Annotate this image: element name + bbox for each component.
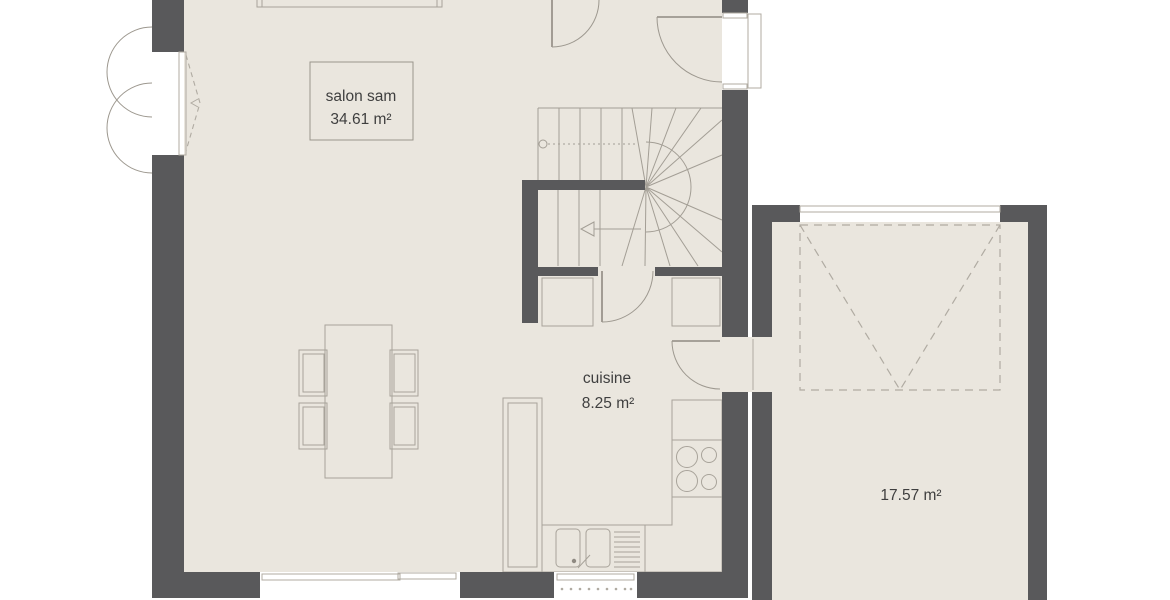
wall-garage-left-upper bbox=[752, 222, 772, 337]
entry-opening bbox=[722, 13, 761, 90]
wall-garage-top-right bbox=[1000, 205, 1047, 222]
wall-left-top bbox=[152, 0, 184, 52]
living-room-name: salon sam bbox=[326, 88, 397, 105]
wall-garage-right bbox=[1028, 222, 1047, 600]
wall-garage-left-lower bbox=[752, 392, 772, 600]
floor-plan-drawing: salon sam 34.61 m² cuisine 8.25 m² 17.57… bbox=[0, 0, 1170, 600]
floors bbox=[184, 0, 1028, 600]
wall-stair-landing bbox=[533, 180, 645, 190]
kitchen-area: 8.25 m² bbox=[582, 395, 635, 412]
wall-bottom-middle bbox=[460, 572, 554, 598]
terrace-door bbox=[260, 572, 460, 598]
wall-vestibule-right bbox=[655, 267, 722, 276]
wall-stair-left bbox=[522, 180, 538, 323]
garage-area: 17.57 m² bbox=[880, 487, 941, 504]
wall-left-main bbox=[152, 155, 184, 572]
floor-plan-page: salon sam 34.61 m² cuisine 8.25 m² 17.57… bbox=[0, 0, 1170, 600]
garage-door-opening bbox=[800, 205, 1000, 222]
label-garage: 17.57 m² bbox=[880, 487, 941, 504]
wall-bottom-right bbox=[637, 572, 748, 598]
passage-floor bbox=[722, 337, 772, 392]
garage-floor bbox=[772, 222, 1028, 600]
kitchen-window bbox=[554, 572, 637, 598]
faucet bbox=[572, 559, 576, 563]
wall-right-upper bbox=[722, 90, 748, 337]
wall-vestibule-left bbox=[538, 267, 598, 276]
wall-bottom-left bbox=[152, 572, 260, 598]
kitchen-name: cuisine bbox=[583, 370, 631, 387]
wall-garage-top-left bbox=[752, 205, 800, 222]
house-floor bbox=[184, 0, 722, 572]
wall-right-stub bbox=[722, 0, 748, 13]
living-room-area: 34.61 m² bbox=[330, 111, 391, 128]
entry-threshold bbox=[748, 14, 761, 88]
wall-right-lower bbox=[722, 392, 748, 572]
